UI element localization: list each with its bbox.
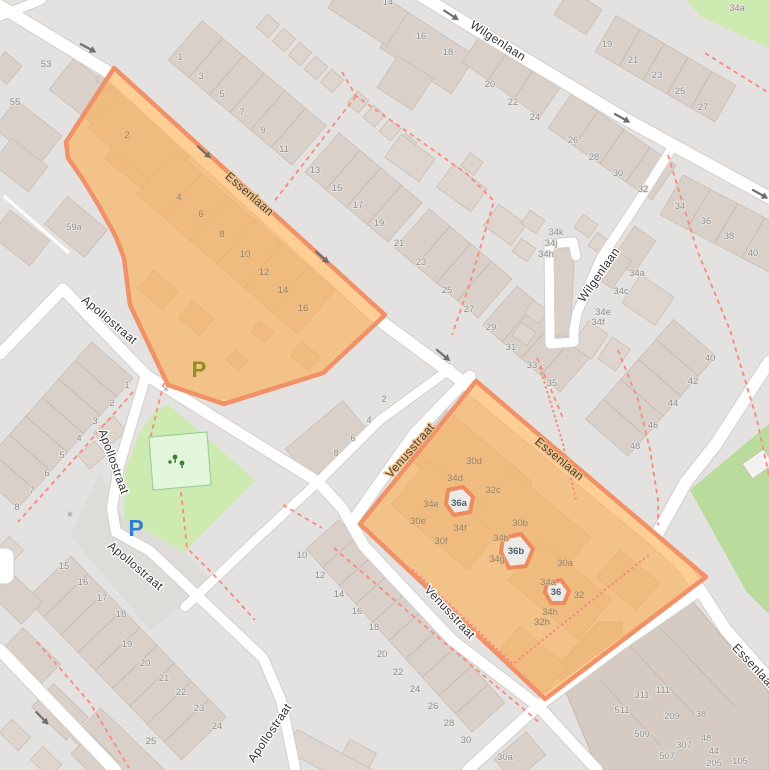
svg-text:36b: 36b	[508, 546, 525, 557]
svg-text:25: 25	[675, 86, 686, 97]
svg-text:10: 10	[297, 550, 308, 561]
svg-text:38: 38	[696, 709, 707, 720]
svg-text:59a: 59a	[66, 222, 83, 233]
svg-text:21: 21	[394, 238, 405, 249]
svg-text:10: 10	[240, 249, 251, 260]
svg-text:27: 27	[698, 102, 709, 113]
svg-text:511: 511	[614, 705, 629, 716]
svg-text:311: 311	[634, 690, 649, 701]
svg-text:22: 22	[393, 667, 404, 678]
svg-text:30d: 30d	[466, 456, 482, 467]
svg-text:34h: 34h	[538, 249, 554, 260]
svg-text:26: 26	[568, 135, 579, 146]
svg-text:2: 2	[381, 394, 386, 405]
svg-text:20: 20	[485, 79, 496, 90]
svg-text:205: 205	[706, 758, 722, 769]
svg-text:30b: 30b	[512, 518, 528, 529]
svg-text:7: 7	[29, 485, 34, 496]
svg-text:19: 19	[602, 39, 613, 50]
svg-text:38: 38	[724, 231, 735, 242]
svg-text:2: 2	[124, 130, 129, 141]
svg-text:27: 27	[464, 304, 475, 315]
svg-text:15: 15	[59, 561, 70, 572]
svg-text:34a: 34a	[729, 3, 746, 14]
svg-text:P: P	[128, 515, 143, 541]
svg-text:20: 20	[377, 649, 388, 660]
svg-text:17: 17	[353, 200, 364, 211]
svg-text:4: 4	[176, 192, 181, 203]
svg-text:23: 23	[194, 703, 205, 714]
svg-text:48: 48	[701, 733, 712, 744]
svg-text:28: 28	[444, 718, 455, 729]
svg-text:14: 14	[334, 589, 345, 600]
svg-text:✳: ✳	[163, 385, 170, 394]
svg-text:✳: ✳	[67, 510, 74, 519]
svg-text:53: 53	[41, 59, 52, 70]
svg-text:16: 16	[416, 31, 427, 42]
svg-text:30f: 30f	[434, 536, 448, 547]
svg-text:23: 23	[652, 70, 663, 81]
svg-text:30a: 30a	[557, 558, 574, 569]
svg-text:19: 19	[374, 218, 385, 229]
svg-text:209: 209	[664, 711, 680, 722]
svg-text:12: 12	[259, 267, 270, 278]
svg-text:1: 1	[124, 380, 129, 391]
svg-text:34k: 34k	[548, 227, 564, 238]
svg-text:11: 11	[279, 144, 289, 155]
svg-text:20: 20	[140, 658, 151, 669]
svg-text:16: 16	[352, 606, 363, 617]
svg-text:8: 8	[333, 448, 338, 459]
svg-text:12: 12	[315, 570, 326, 581]
svg-text:16: 16	[298, 303, 309, 314]
svg-text:30: 30	[613, 168, 624, 179]
svg-text:44: 44	[709, 746, 720, 757]
svg-text:40: 40	[705, 353, 716, 364]
svg-text:111: 111	[656, 685, 670, 696]
svg-text:36: 36	[551, 587, 562, 598]
svg-text:24: 24	[212, 721, 223, 732]
svg-text:307: 307	[676, 740, 692, 751]
svg-text:8: 8	[14, 502, 19, 513]
svg-text:36: 36	[701, 216, 712, 227]
svg-text:34b: 34b	[493, 533, 509, 544]
svg-text:28: 28	[589, 152, 600, 163]
svg-text:32: 32	[638, 184, 649, 195]
svg-text:32c: 32c	[485, 485, 501, 496]
svg-text:16: 16	[78, 577, 89, 588]
svg-text:25: 25	[442, 285, 453, 296]
svg-text:18: 18	[116, 609, 127, 620]
svg-text:507: 507	[659, 751, 675, 762]
svg-text:15: 15	[332, 183, 343, 194]
svg-text:33: 33	[527, 360, 538, 371]
svg-text:22: 22	[176, 687, 187, 698]
svg-text:48: 48	[630, 441, 641, 452]
svg-text:34a: 34a	[629, 268, 646, 279]
svg-text:34: 34	[675, 201, 686, 212]
svg-text:6: 6	[350, 433, 355, 444]
svg-text:30e: 30e	[410, 516, 426, 527]
svg-text:5: 5	[219, 89, 224, 100]
svg-text:P: P	[192, 357, 207, 382]
svg-text:34e: 34e	[423, 499, 439, 510]
svg-text:42: 42	[688, 376, 699, 387]
svg-text:46: 46	[648, 420, 659, 431]
svg-text:509: 509	[634, 729, 650, 740]
svg-text:30a: 30a	[497, 752, 514, 763]
svg-text:18: 18	[443, 47, 454, 58]
svg-text:34f: 34f	[453, 523, 467, 534]
svg-text:34d: 34d	[447, 473, 463, 484]
svg-text:14: 14	[278, 285, 289, 296]
svg-text:105: 105	[732, 756, 748, 767]
svg-text:21: 21	[159, 673, 170, 684]
svg-text:13: 13	[310, 165, 321, 176]
svg-text:24: 24	[410, 684, 421, 695]
svg-text:32h: 32h	[534, 617, 550, 628]
svg-text:1: 1	[177, 52, 182, 63]
svg-text:17: 17	[97, 593, 108, 604]
svg-text:9: 9	[260, 125, 265, 136]
svg-text:2: 2	[109, 398, 114, 409]
svg-text:36a: 36a	[451, 498, 468, 509]
svg-text:7: 7	[239, 107, 244, 118]
svg-text:21: 21	[628, 55, 639, 66]
svg-text:4: 4	[366, 415, 371, 426]
svg-text:8: 8	[219, 229, 224, 240]
svg-text:3: 3	[92, 416, 97, 427]
svg-text:30: 30	[461, 735, 472, 746]
svg-text:29: 29	[486, 322, 497, 333]
svg-text:4: 4	[76, 433, 81, 444]
svg-text:55: 55	[10, 97, 21, 108]
svg-text:19: 19	[122, 639, 133, 650]
svg-text:24: 24	[530, 112, 541, 123]
svg-text:18: 18	[369, 622, 380, 633]
svg-text:14: 14	[383, 0, 394, 8]
svg-text:23: 23	[416, 257, 427, 268]
svg-text:44: 44	[668, 398, 679, 409]
svg-text:34f: 34f	[591, 317, 605, 328]
svg-text:34j: 34j	[545, 238, 558, 249]
svg-text:35: 35	[547, 378, 558, 389]
svg-text:34g: 34g	[489, 554, 505, 565]
svg-text:22: 22	[508, 97, 519, 108]
svg-text:40: 40	[748, 248, 759, 259]
svg-text:32: 32	[574, 590, 585, 601]
svg-text:26: 26	[428, 701, 439, 712]
svg-text:6: 6	[198, 209, 203, 220]
svg-text:34c: 34c	[613, 286, 629, 297]
svg-text:6: 6	[44, 468, 49, 479]
svg-text:5: 5	[59, 450, 64, 461]
svg-text:31: 31	[506, 342, 517, 353]
svg-text:25: 25	[146, 736, 157, 747]
svg-text:3: 3	[198, 71, 203, 82]
